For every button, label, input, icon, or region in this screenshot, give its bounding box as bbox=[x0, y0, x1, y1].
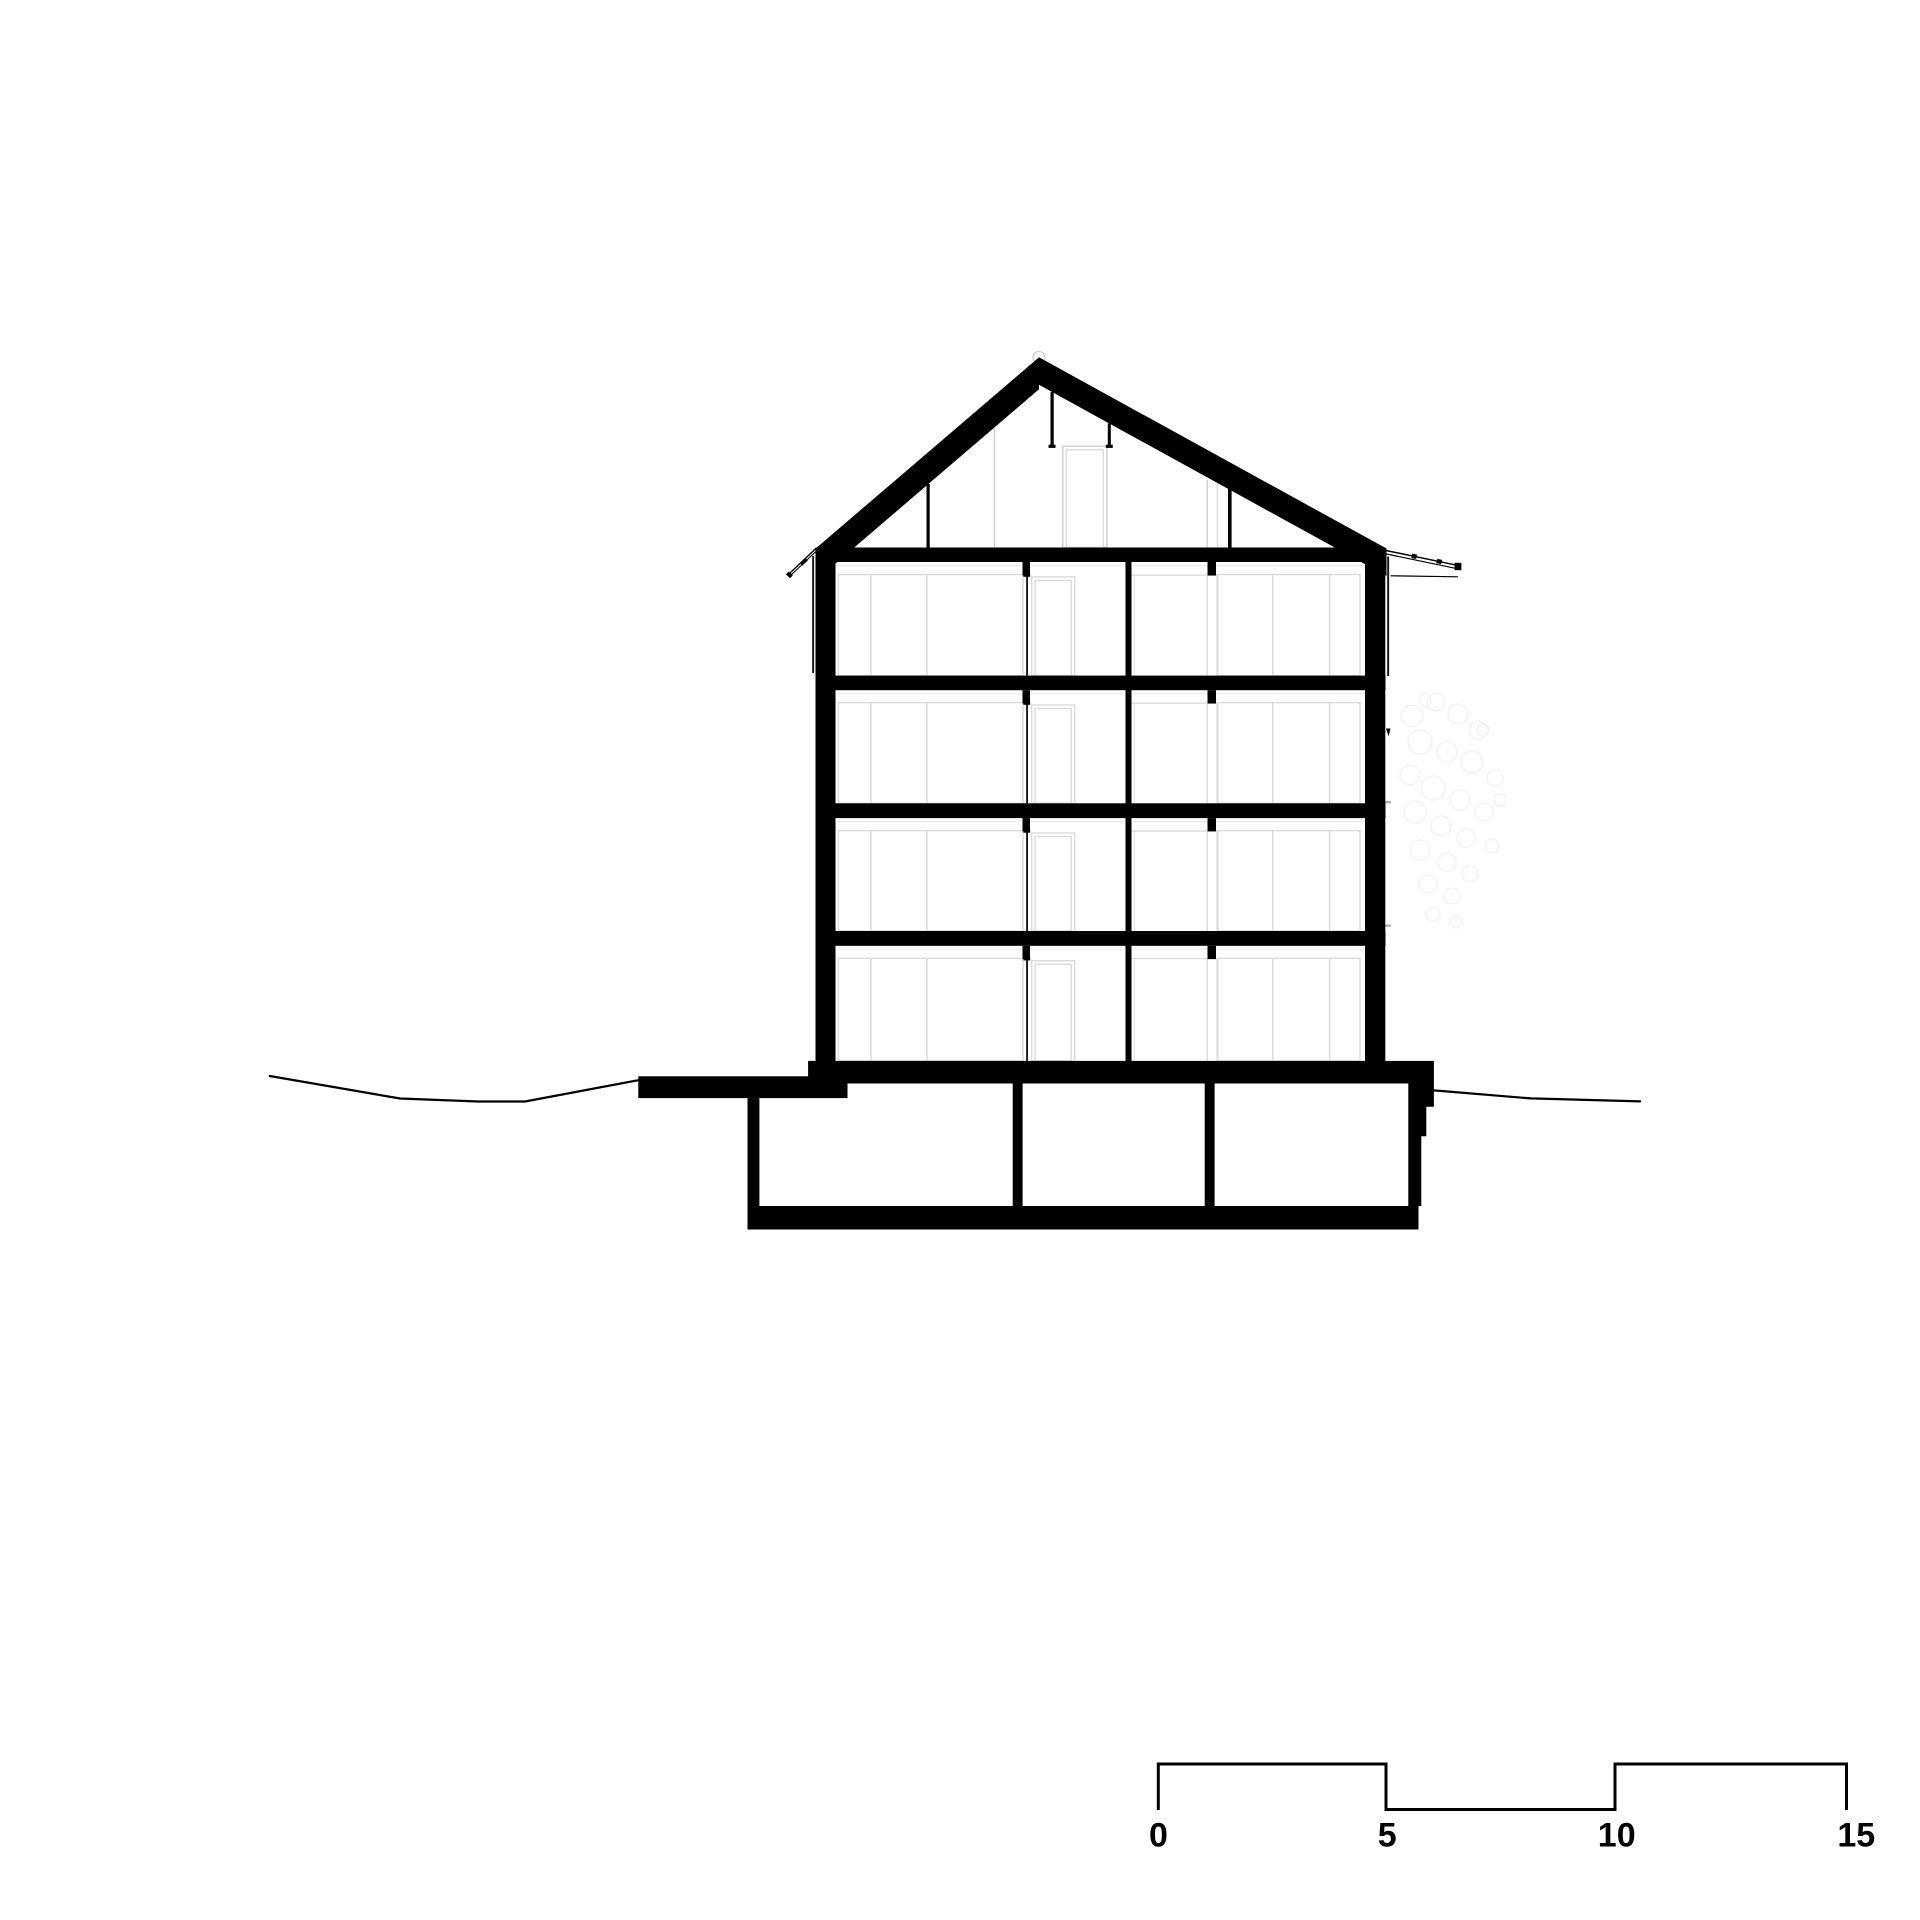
svg-text:15: 15 bbox=[1837, 1817, 1875, 1855]
svg-text:10: 10 bbox=[1598, 1817, 1636, 1855]
svg-text:5: 5 bbox=[1378, 1817, 1397, 1855]
svg-text:0: 0 bbox=[1149, 1817, 1168, 1855]
